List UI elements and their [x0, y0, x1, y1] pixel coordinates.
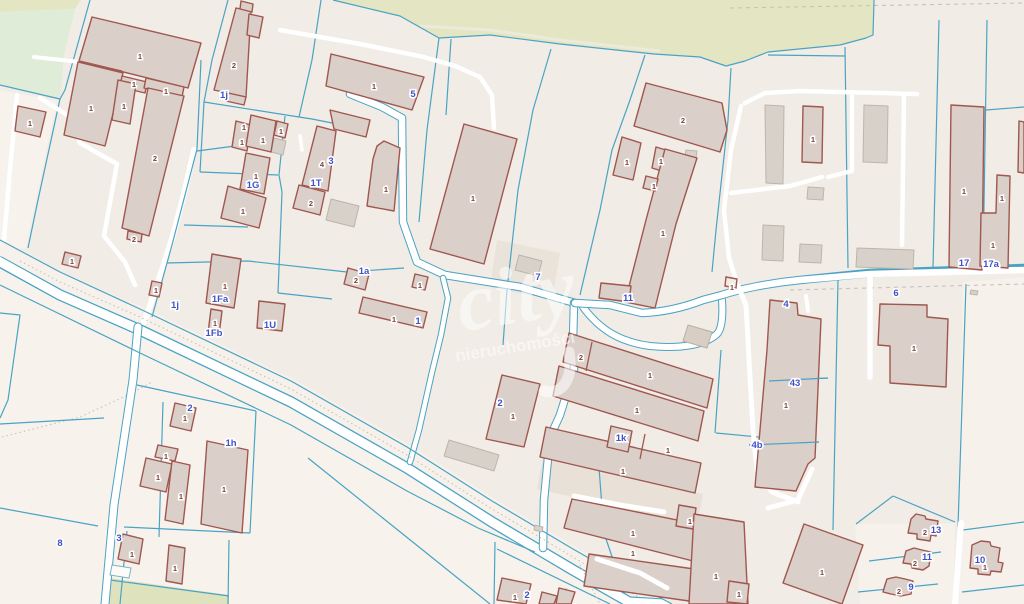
svg-text:2: 2 — [497, 398, 502, 409]
svg-text:1: 1 — [688, 517, 692, 526]
svg-text:8: 8 — [57, 538, 62, 549]
svg-text:1: 1 — [222, 485, 226, 494]
svg-text:17: 17 — [959, 258, 970, 269]
svg-text:1: 1 — [714, 572, 718, 581]
svg-text:1: 1 — [89, 104, 93, 113]
svg-text:1j: 1j — [171, 300, 179, 311]
svg-text:2: 2 — [913, 559, 917, 568]
svg-text:1: 1 — [279, 127, 283, 136]
svg-text:1: 1 — [156, 473, 160, 482]
svg-text:17a: 17a — [983, 259, 1000, 270]
svg-text:2: 2 — [232, 61, 236, 70]
svg-text:1: 1 — [130, 550, 134, 559]
svg-text:1: 1 — [820, 568, 824, 577]
svg-text:2: 2 — [681, 116, 685, 125]
svg-text:1: 1 — [122, 102, 126, 111]
svg-text:1: 1 — [138, 52, 142, 61]
svg-text:2: 2 — [524, 590, 529, 601]
svg-text:1: 1 — [132, 80, 136, 89]
svg-text:1: 1 — [962, 187, 966, 196]
svg-text:1: 1 — [384, 185, 388, 194]
svg-text:1: 1 — [173, 564, 177, 573]
svg-text:1: 1 — [511, 412, 515, 421]
svg-text:1: 1 — [70, 257, 74, 266]
svg-text:1: 1 — [784, 401, 788, 410]
svg-text:2: 2 — [153, 154, 157, 163]
svg-text:1Fb: 1Fb — [206, 328, 223, 339]
svg-text:1: 1 — [991, 241, 995, 250]
svg-text:1: 1 — [213, 319, 217, 328]
svg-text:1: 1 — [154, 286, 158, 295]
svg-text:1: 1 — [513, 593, 517, 602]
svg-text:1: 1 — [261, 136, 265, 145]
svg-text:1U: 1U — [264, 320, 276, 331]
svg-text:1h: 1h — [225, 438, 236, 449]
svg-text:1a: 1a — [359, 266, 370, 277]
svg-text:43: 43 — [790, 378, 801, 389]
svg-text:1: 1 — [372, 82, 376, 91]
svg-text:5: 5 — [410, 89, 416, 100]
svg-text:2: 2 — [309, 199, 313, 208]
svg-text:1j: 1j — [220, 90, 228, 101]
svg-text:1k: 1k — [616, 433, 627, 444]
svg-text:1: 1 — [183, 414, 187, 423]
svg-text:3: 3 — [328, 156, 333, 167]
svg-text:1: 1 — [625, 158, 629, 167]
svg-text:9: 9 — [908, 582, 913, 593]
svg-text:2: 2 — [187, 403, 192, 414]
svg-text:1: 1 — [652, 182, 656, 191]
svg-text:1: 1 — [179, 492, 183, 501]
svg-text:1Fa: 1Fa — [212, 294, 229, 305]
svg-text:2: 2 — [132, 235, 136, 244]
svg-text:10: 10 — [975, 555, 986, 566]
svg-text:1: 1 — [635, 406, 639, 415]
svg-text:1: 1 — [666, 446, 670, 455]
svg-text:1: 1 — [418, 281, 422, 290]
svg-text:1: 1 — [415, 316, 421, 327]
svg-text:1: 1 — [811, 135, 815, 144]
svg-text:1: 1 — [164, 452, 168, 461]
svg-text:1: 1 — [392, 315, 396, 324]
svg-text:1: 1 — [471, 194, 475, 203]
svg-text:1: 1 — [223, 282, 227, 291]
svg-text:1: 1 — [737, 590, 741, 599]
svg-text:2: 2 — [897, 587, 901, 596]
svg-text:1: 1 — [621, 467, 625, 476]
svg-text:4b: 4b — [751, 440, 762, 451]
svg-text:2: 2 — [579, 353, 583, 362]
svg-text:1: 1 — [1000, 194, 1004, 203]
svg-text:1: 1 — [659, 157, 663, 166]
svg-text:1: 1 — [164, 87, 168, 96]
svg-text:4: 4 — [783, 299, 789, 310]
svg-text:1: 1 — [240, 138, 244, 147]
svg-text:3: 3 — [116, 533, 121, 544]
svg-text:1: 1 — [912, 344, 916, 353]
svg-text:13: 13 — [931, 525, 942, 536]
svg-text:1: 1 — [631, 529, 635, 538]
svg-text:1G: 1G — [247, 180, 260, 191]
svg-text:1: 1 — [730, 283, 734, 292]
svg-text:1: 1 — [242, 123, 246, 132]
svg-text:11: 11 — [623, 293, 634, 304]
svg-text:6: 6 — [893, 288, 898, 299]
svg-text:1: 1 — [631, 549, 635, 558]
svg-text:1T: 1T — [310, 178, 321, 189]
svg-text:11: 11 — [922, 552, 933, 563]
svg-text:1: 1 — [661, 229, 665, 238]
svg-text:1: 1 — [241, 207, 245, 216]
svg-text:1: 1 — [648, 371, 652, 380]
svg-text:1: 1 — [28, 119, 32, 128]
svg-text:2: 2 — [923, 528, 927, 537]
svg-text:2: 2 — [354, 276, 358, 285]
